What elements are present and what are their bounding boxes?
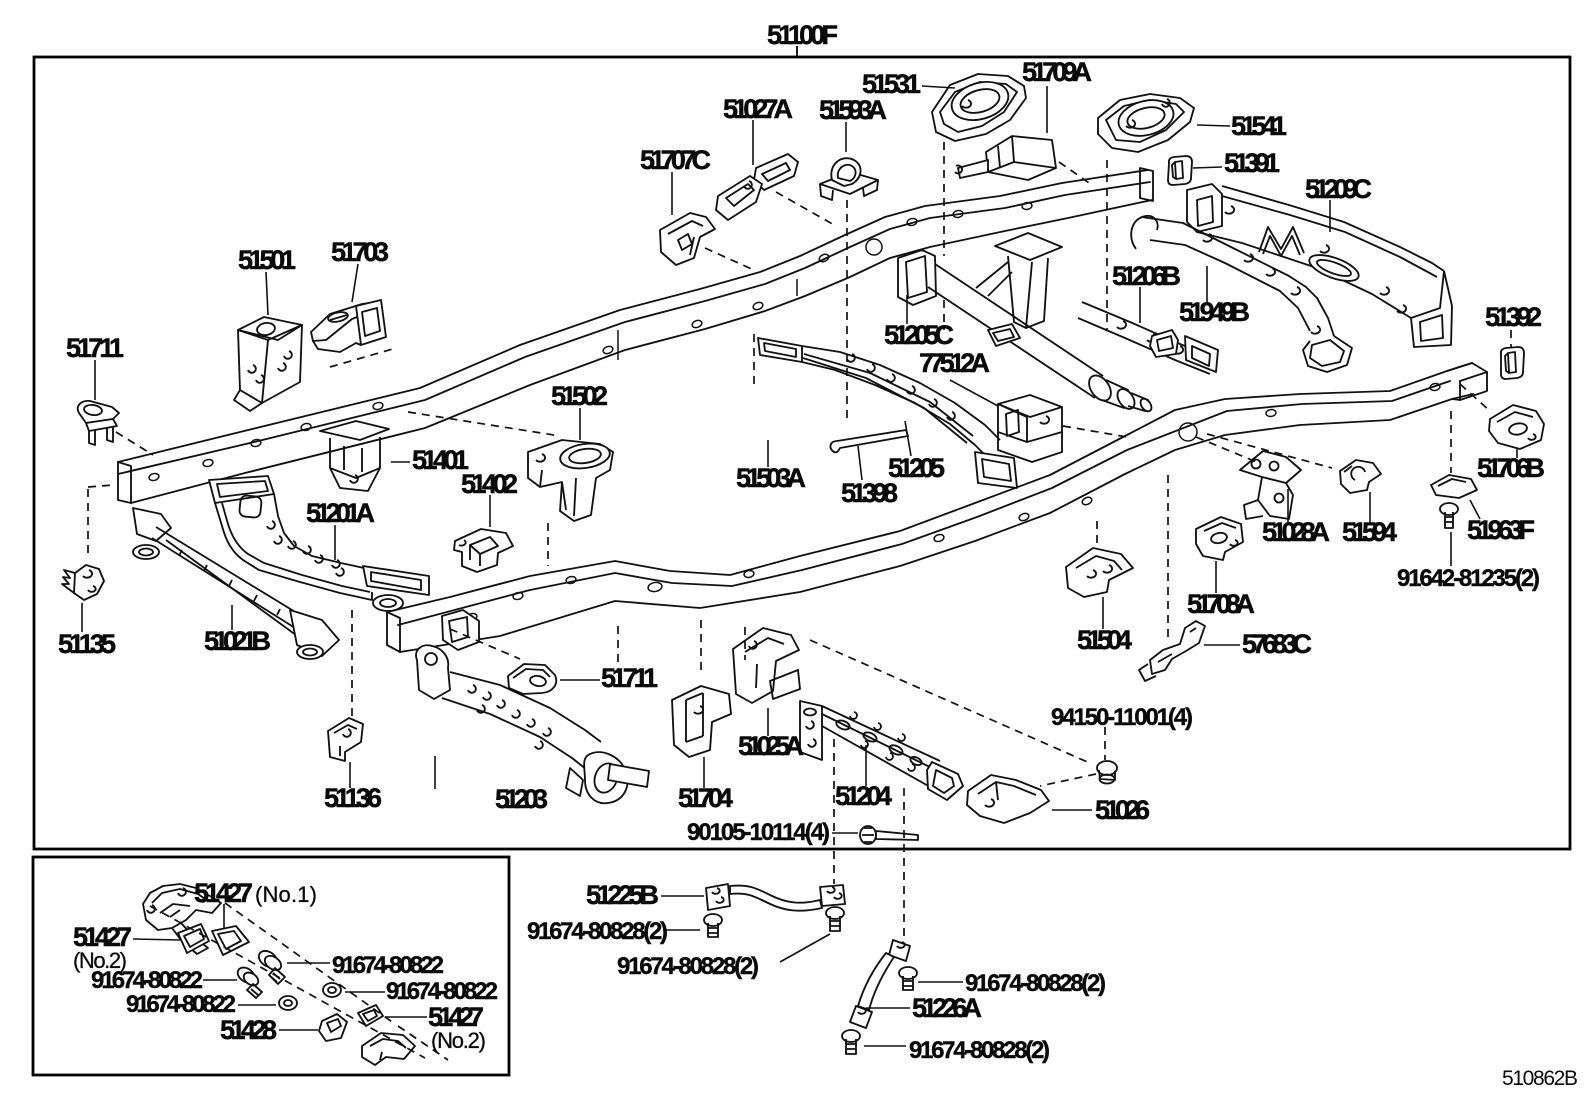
svg-text:51226A: 51226A (912, 993, 982, 1023)
svg-text:51709A: 51709A (1022, 57, 1092, 87)
svg-text:51100F: 51100F (767, 20, 838, 50)
svg-text:51504: 51504 (1077, 625, 1132, 655)
svg-text:51026: 51026 (1095, 795, 1150, 825)
svg-text:51594: 51594 (1342, 517, 1397, 547)
svg-text:91674-80828(2): 91674-80828(2) (617, 953, 759, 980)
svg-text:51209C: 51209C (1305, 174, 1372, 204)
svg-text:51028A: 51028A (1262, 517, 1330, 547)
svg-text:51203: 51203 (495, 784, 548, 814)
svg-text:51398: 51398 (841, 478, 898, 508)
svg-text:51225B: 51225B (586, 880, 659, 910)
svg-text:51391: 51391 (1224, 148, 1280, 178)
svg-text:51963F: 51963F (1467, 515, 1535, 545)
svg-text:51593A: 51593A (819, 95, 887, 125)
svg-text:51711: 51711 (601, 663, 658, 693)
svg-text:51021B: 51021B (204, 626, 271, 656)
svg-text:51703: 51703 (331, 237, 389, 267)
svg-text:51027A: 51027A (723, 94, 793, 124)
svg-text:51708A: 51708A (1187, 589, 1255, 619)
svg-text:51704: 51704 (678, 783, 733, 813)
svg-text:51135: 51135 (58, 629, 116, 659)
svg-text:91674-80822: 91674-80822 (91, 967, 203, 994)
svg-text:57683C: 57683C (1242, 629, 1312, 659)
svg-text:51205C: 51205C (884, 320, 954, 350)
svg-text:(No.1): (No.1) (255, 882, 317, 907)
svg-text:51206B: 51206B (1112, 261, 1181, 291)
svg-text:51503A: 51503A (736, 463, 806, 493)
svg-text:51402: 51402 (461, 469, 518, 499)
svg-text:51204: 51204 (835, 781, 892, 811)
svg-text:91674-80822: 91674-80822 (386, 978, 498, 1005)
svg-text:51502: 51502 (551, 381, 608, 411)
svg-text:51949B: 51949B (1179, 297, 1250, 327)
svg-text:51541: 51541 (1231, 111, 1287, 141)
svg-text:51025A: 51025A (738, 731, 804, 761)
svg-text:91642-81235(2): 91642-81235(2) (1397, 565, 1540, 592)
svg-text:51427: 51427 (194, 878, 253, 908)
svg-text:51136: 51136 (324, 783, 382, 813)
svg-text:51707C: 51707C (640, 145, 711, 175)
svg-text:91674-80828(2): 91674-80828(2) (909, 1037, 1050, 1064)
svg-text:510862B: 510862B (1502, 1067, 1578, 1090)
svg-text:91674-80828(2): 91674-80828(2) (527, 918, 668, 945)
svg-text:51201A: 51201A (306, 498, 375, 528)
svg-text:51428: 51428 (220, 1015, 277, 1045)
svg-text:90105-10114(4): 90105-10114(4) (687, 819, 830, 846)
svg-text:91674-80822: 91674-80822 (332, 952, 444, 979)
svg-text:91674-80828(2): 91674-80828(2) (965, 970, 1106, 997)
svg-text:51711: 51711 (66, 333, 124, 363)
svg-text:51392: 51392 (1485, 302, 1542, 332)
svg-text:94150-11001(4): 94150-11001(4) (1051, 704, 1193, 731)
svg-text:51501: 51501 (238, 245, 296, 275)
svg-text:77512A: 77512A (919, 348, 990, 378)
svg-text:51706B: 51706B (1477, 453, 1545, 483)
svg-text:91674-80822: 91674-80822 (126, 991, 236, 1018)
svg-text:(No.2): (No.2) (431, 1028, 486, 1053)
